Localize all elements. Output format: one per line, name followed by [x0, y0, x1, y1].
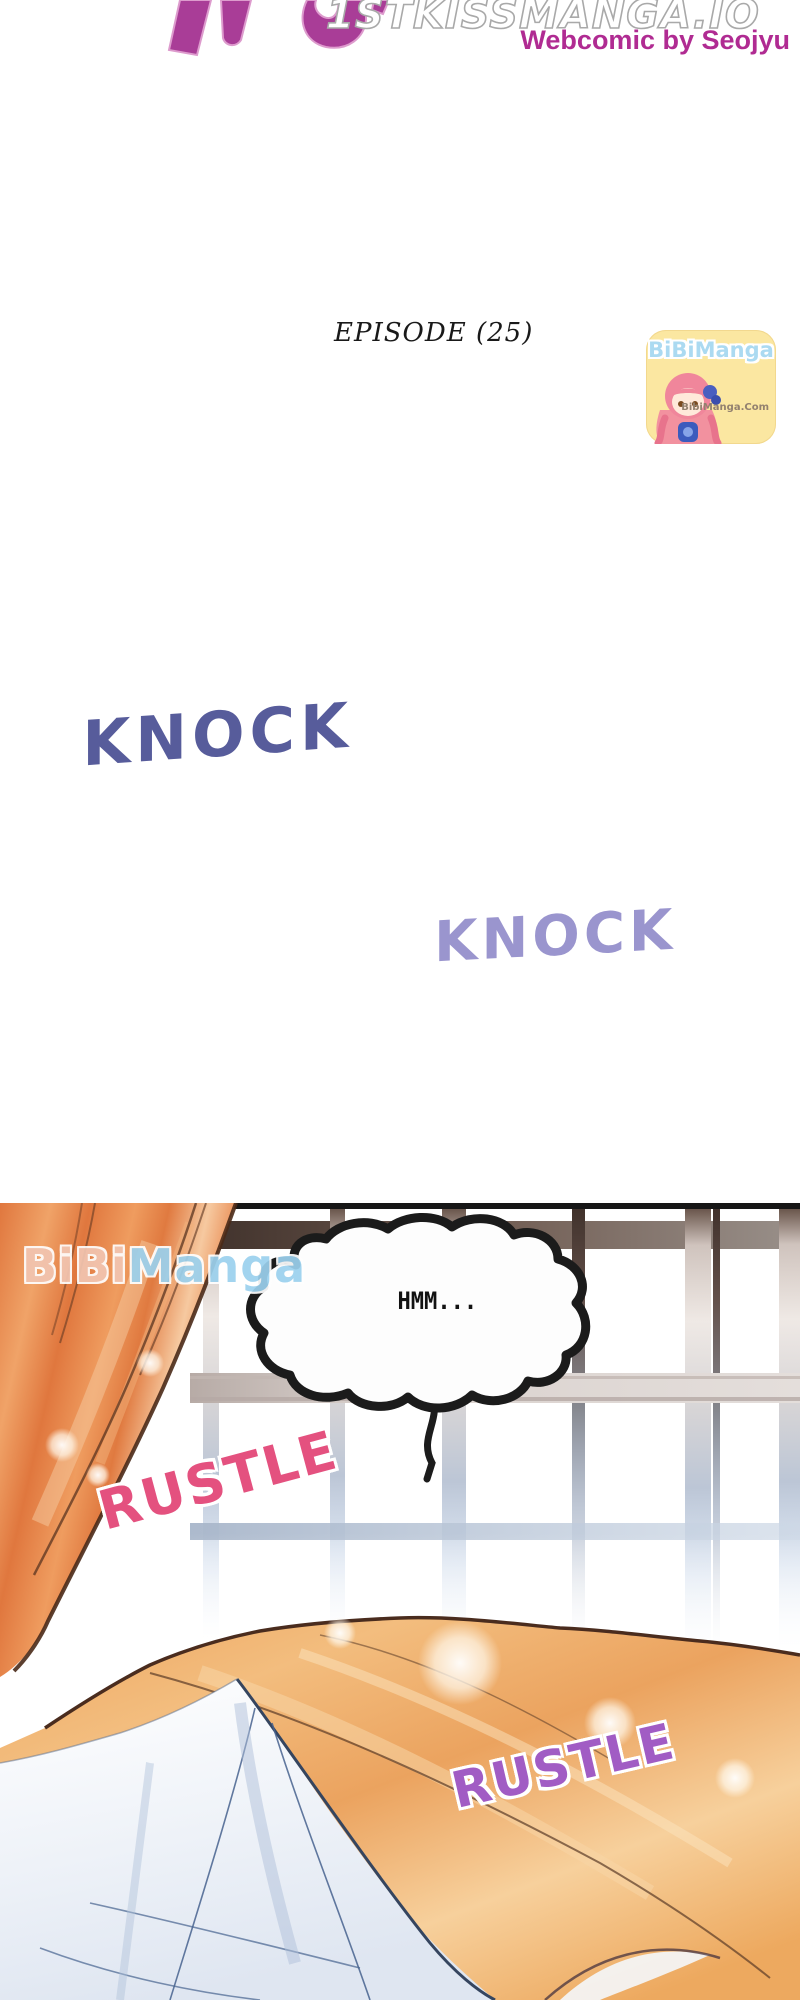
author-credit: Webcomic by Seojyu: [520, 25, 790, 56]
webcomic-page: 1STKISSMANGA.IO Webcomic by Seojyu EPISO…: [0, 0, 800, 2000]
publisher-badge: BiBiManga BibiManga.Com: [646, 330, 776, 444]
speech-bubble-text: HMM...: [397, 1287, 477, 1315]
panel-watermark: BiBiManga: [22, 1239, 306, 1293]
episode-heading: EPISODE (25): [334, 318, 533, 348]
publisher-badge-url: BibiManga.Com: [681, 402, 769, 413]
panel-illustration: [0, 1203, 800, 2000]
sfx-knock-2: KNOCK: [434, 898, 676, 976]
publisher-badge-title: BiBiManga: [646, 338, 776, 362]
panel-watermark-part2: Manga: [128, 1239, 307, 1293]
panel-watermark-part1: BiBi: [22, 1239, 128, 1293]
comic-panel: HMM... BiBiManga RUSTLE RUSTLE: [0, 1203, 800, 2000]
sfx-knock-1: KNOCK: [82, 688, 353, 780]
